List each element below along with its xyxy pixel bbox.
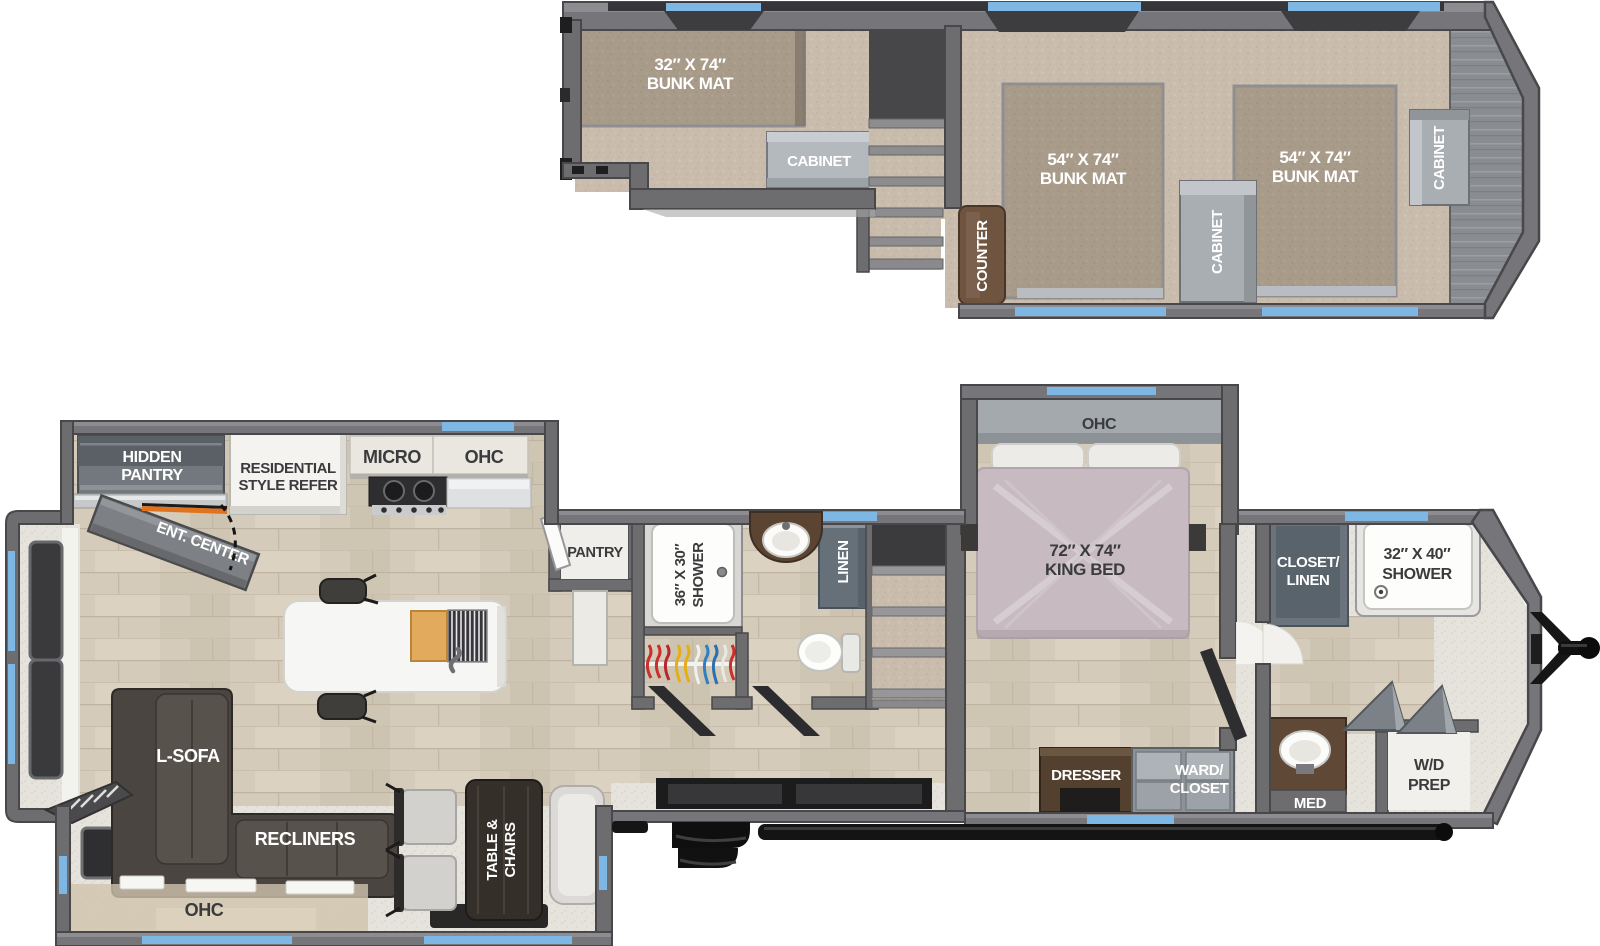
svg-text:MICRO: MICRO [363,447,421,467]
svg-text:LINEN: LINEN [835,540,852,583]
svg-text:PANTRY: PANTRY [567,545,623,561]
svg-text:BUNK MAT: BUNK MAT [1272,167,1359,186]
svg-text:36″ X 30″: 36″ X 30″ [672,544,689,607]
svg-text:32″ X 40″: 32″ X 40″ [1384,546,1452,563]
svg-text:KING BED: KING BED [1045,560,1125,579]
svg-text:CLOSET: CLOSET [1170,780,1229,797]
svg-text:COUNTER: COUNTER [974,220,991,292]
svg-text:SHOWER: SHOWER [690,542,707,608]
svg-text:W/D: W/D [1414,757,1444,774]
svg-text:LINEN: LINEN [1286,572,1329,589]
svg-text:DRESSER: DRESSER [1051,767,1121,784]
svg-text:MED: MED [1294,795,1327,812]
svg-text:OHC: OHC [1082,416,1117,433]
svg-text:OHC: OHC [465,447,504,467]
svg-text:32″ X 74″: 32″ X 74″ [654,55,726,74]
svg-text:72″ X 74″: 72″ X 74″ [1049,541,1121,560]
svg-text:PANTRY: PANTRY [121,467,183,484]
svg-text:CABINET: CABINET [1431,126,1448,190]
svg-text:CHAIRS: CHAIRS [502,822,519,877]
svg-text:CABINET: CABINET [1209,210,1226,274]
svg-text:54″ X 74″: 54″ X 74″ [1279,148,1351,167]
svg-text:BUNK MAT: BUNK MAT [647,74,734,93]
svg-text:BUNK MAT: BUNK MAT [1040,169,1127,188]
svg-text:TABLE &: TABLE & [484,819,501,881]
svg-text:OHC: OHC [185,900,224,920]
svg-text:CLOSET/: CLOSET/ [1277,554,1340,571]
svg-text:54″ X 74″: 54″ X 74″ [1047,150,1119,169]
svg-text:CABINET: CABINET [787,153,851,170]
svg-text:L-SOFA: L-SOFA [156,746,220,766]
svg-text:RESIDENTIAL: RESIDENTIAL [240,460,336,477]
svg-text:PREP: PREP [1408,777,1451,794]
svg-text:HIDDEN: HIDDEN [123,449,182,466]
svg-text:RECLINERS: RECLINERS [255,829,356,849]
svg-text:STYLE REFER: STYLE REFER [239,477,339,494]
svg-text:WARD/: WARD/ [1175,762,1224,779]
svg-text:SHOWER: SHOWER [1382,566,1452,583]
